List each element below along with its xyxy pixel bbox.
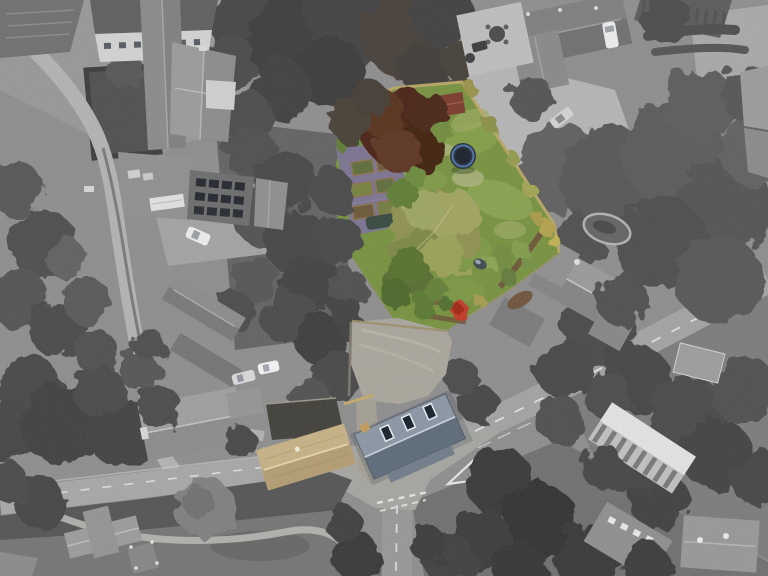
film-grain (0, 0, 768, 576)
aerial-photo-canvas (0, 0, 768, 576)
scene-root (0, 0, 768, 576)
aerial-drone-photograph (0, 0, 768, 576)
